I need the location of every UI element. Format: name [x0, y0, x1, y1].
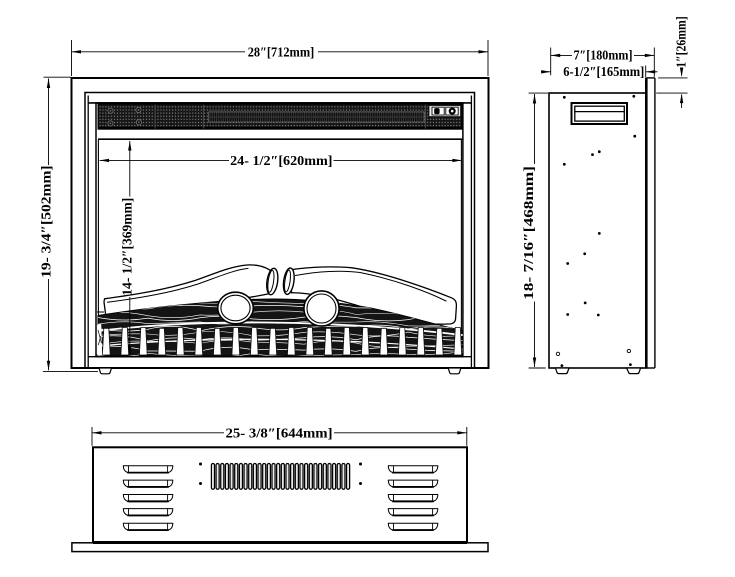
svg-text:14- 1/2″[369mm]: 14- 1/2″[369mm]: [119, 198, 134, 296]
svg-text:24- 1/2″[620mm]: 24- 1/2″[620mm]: [230, 153, 332, 168]
svg-text:1″[26mm]: 1″[26mm]: [674, 16, 689, 68]
svg-text:7″[180mm]: 7″[180mm]: [574, 48, 633, 63]
svg-text:28″[712mm]: 28″[712mm]: [248, 44, 315, 59]
svg-text:6-1/2″[165mm]: 6-1/2″[165mm]: [563, 64, 644, 79]
svg-text:18- 7/16″[468mm]: 18- 7/16″[468mm]: [521, 166, 536, 300]
svg-text:25- 3/8″[644mm]: 25- 3/8″[644mm]: [226, 425, 333, 440]
svg-text:19- 3/4″[502mm]: 19- 3/4″[502mm]: [38, 165, 53, 278]
